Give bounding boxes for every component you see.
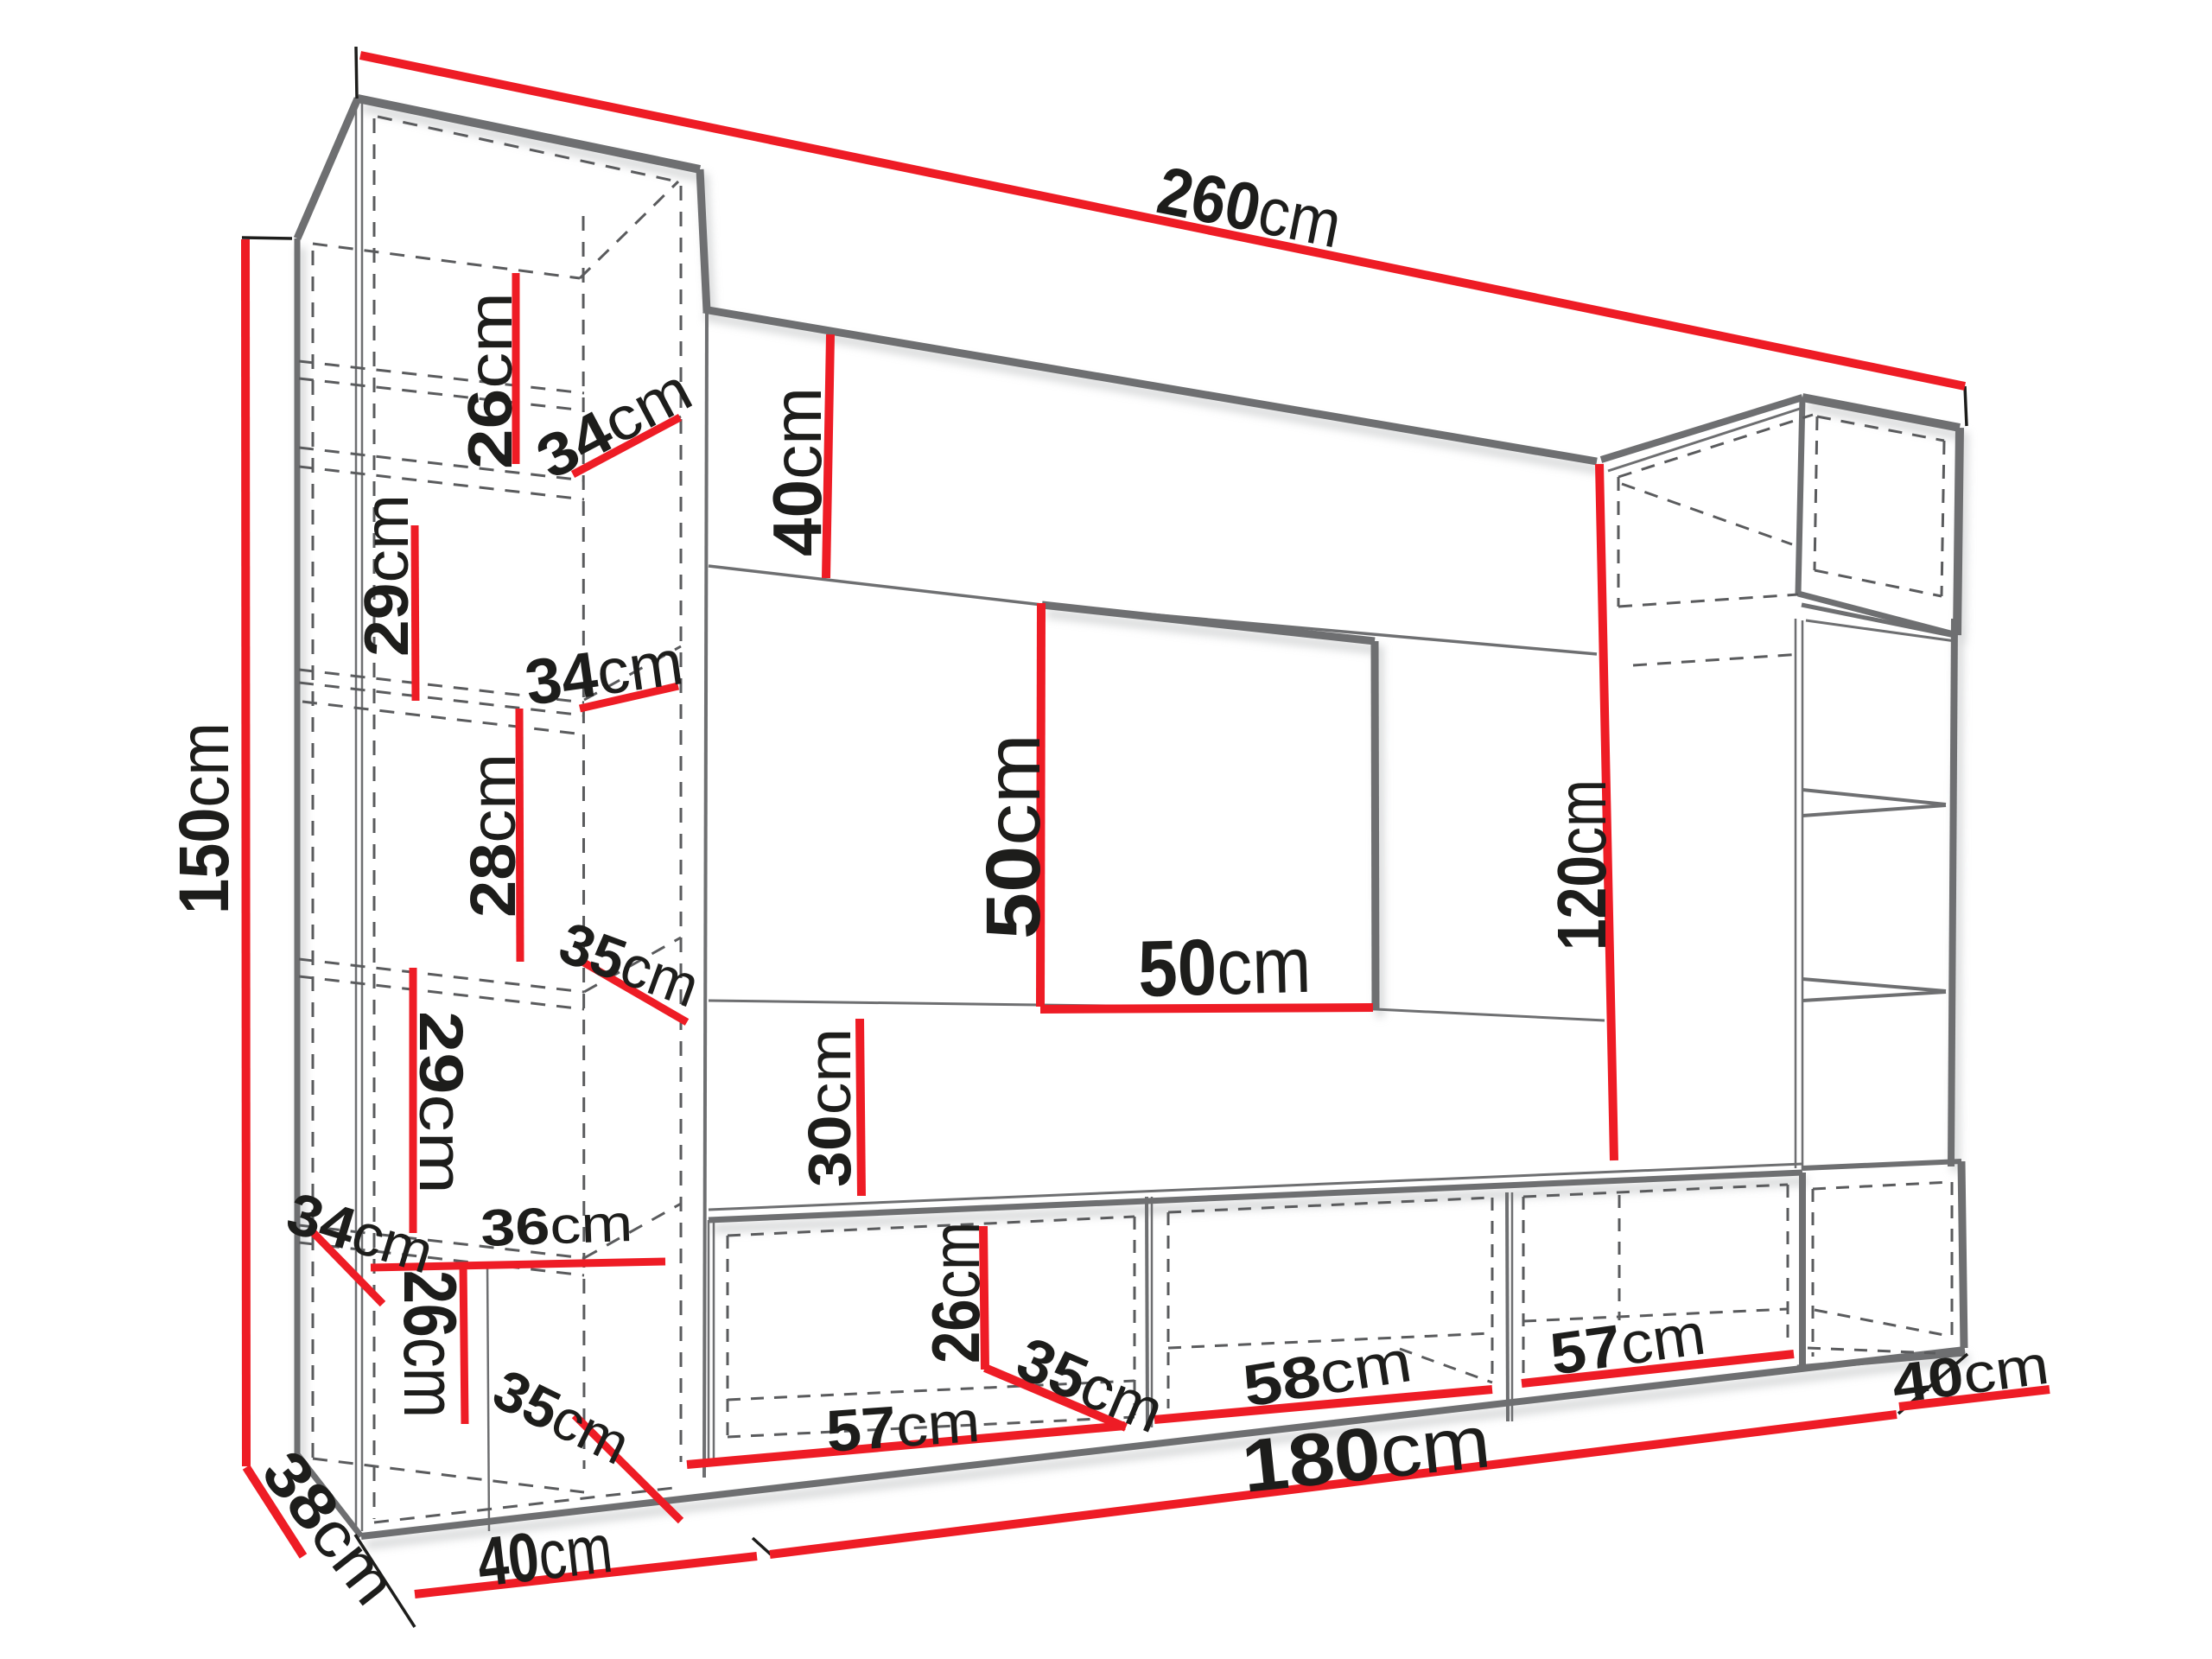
svg-text:26cm: 26cm xyxy=(456,292,525,469)
svg-text:29cm: 29cm xyxy=(406,1011,474,1194)
svg-text:30cm: 30cm xyxy=(796,1028,863,1187)
svg-text:50cm: 50cm xyxy=(1137,921,1313,1014)
svg-text:120cm: 120cm xyxy=(1543,779,1620,950)
svg-text:40cm: 40cm xyxy=(759,387,836,556)
svg-text:29cm: 29cm xyxy=(353,494,422,657)
svg-text:26cm: 26cm xyxy=(388,1270,471,1418)
svg-text:36cm: 36cm xyxy=(480,1194,633,1257)
svg-text:50cm: 50cm xyxy=(969,734,1056,939)
svg-text:150cm: 150cm xyxy=(165,722,244,914)
svg-text:57cm: 57cm xyxy=(824,1389,982,1465)
svg-text:26cm: 26cm xyxy=(918,1222,994,1363)
svg-text:40cm: 40cm xyxy=(474,1510,616,1601)
svg-text:28cm: 28cm xyxy=(457,753,529,918)
